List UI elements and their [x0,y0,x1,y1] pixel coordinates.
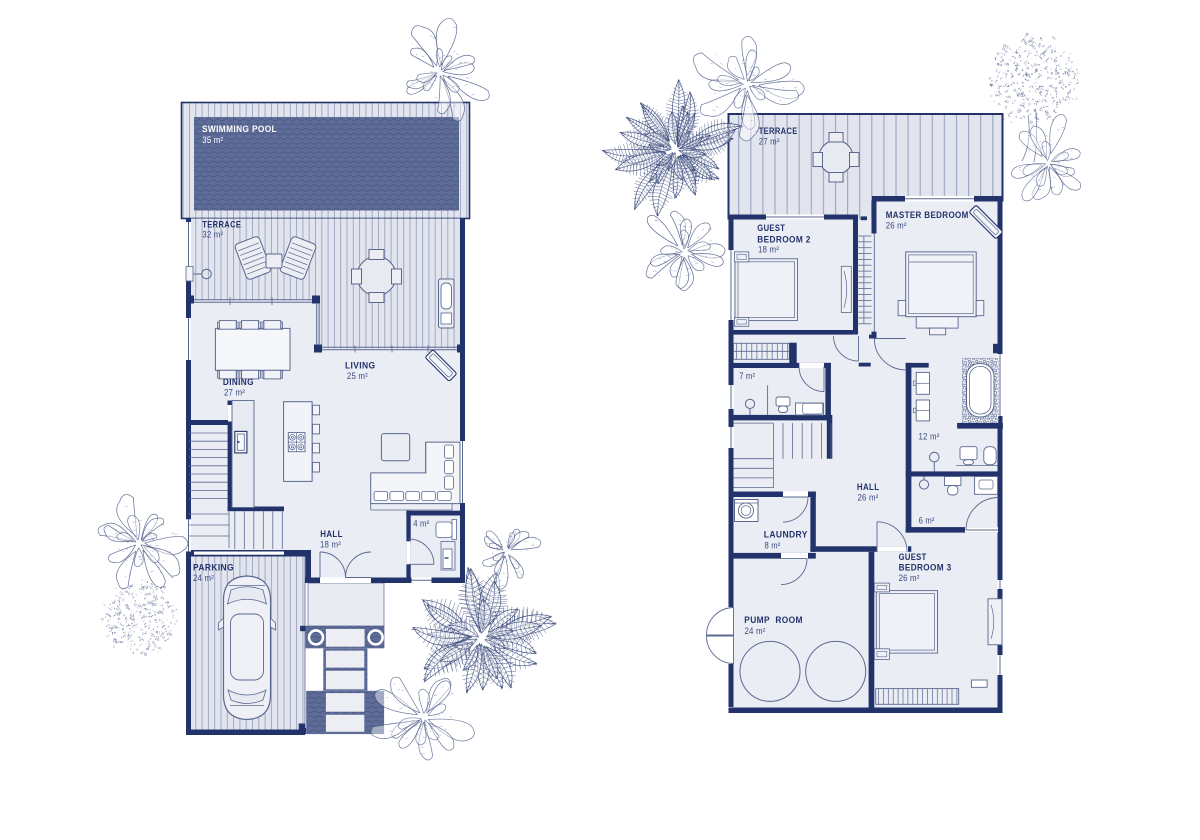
svg-text:LAUNDRY: LAUNDRY [764,530,808,540]
svg-text:27 m²: 27 m² [759,137,780,147]
svg-text:35 m²: 35 m² [202,135,223,145]
svg-text:LIVING: LIVING [345,361,376,371]
svg-text:26 m²: 26 m² [899,573,920,583]
svg-text:7 m²: 7 m² [739,371,755,381]
svg-text:TERRACE: TERRACE [759,126,798,136]
svg-text:PUMP ROOM: PUMP ROOM [744,615,803,625]
svg-text:27 m²: 27 m² [224,387,245,397]
svg-text:MASTER BEDROOM: MASTER BEDROOM [886,210,969,220]
svg-text:4 m²: 4 m² [413,519,429,529]
svg-text:25 m²: 25 m² [347,371,368,381]
svg-text:TERRACE: TERRACE [202,220,241,230]
svg-text:BEDROOM 3: BEDROOM 3 [899,563,952,573]
svg-text:DINING: DINING [223,377,254,387]
svg-text:26 m²: 26 m² [858,492,879,502]
svg-text:SWIMMING POOL: SWIMMING POOL [202,124,277,134]
svg-text:6 m²: 6 m² [919,516,935,526]
svg-text:26 m²: 26 m² [886,220,907,230]
svg-text:BEDROOM 2: BEDROOM 2 [757,234,811,244]
svg-text:32 m²: 32 m² [202,230,223,240]
svg-text:18 m²: 18 m² [320,540,341,550]
svg-text:GUEST: GUEST [757,223,785,233]
svg-text:24 m²: 24 m² [193,573,214,583]
svg-text:PARKING: PARKING [193,563,234,573]
svg-text:18 m²: 18 m² [758,245,779,255]
svg-text:24 m²: 24 m² [745,626,766,636]
svg-text:HALL: HALL [857,482,880,492]
svg-text:8 m²: 8 m² [765,540,781,550]
svg-text:GUEST: GUEST [899,552,927,562]
svg-text:HALL: HALL [320,529,343,539]
svg-text:12 m²: 12 m² [919,431,940,441]
